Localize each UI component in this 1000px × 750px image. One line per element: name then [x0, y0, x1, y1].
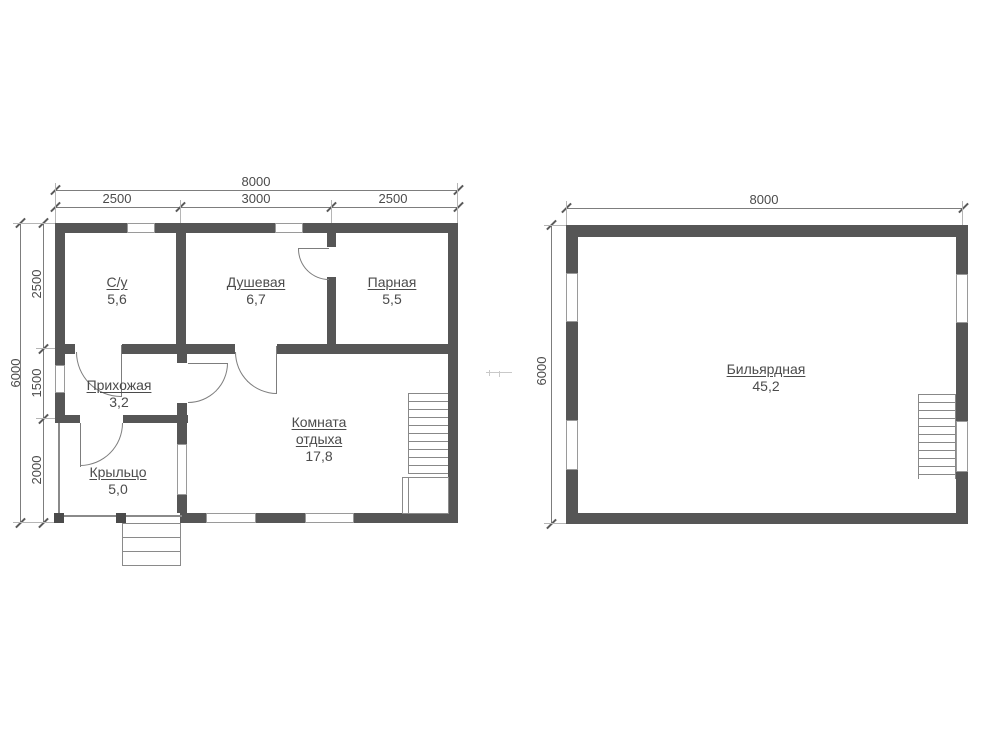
- window: [566, 273, 578, 322]
- window: [956, 274, 968, 323]
- extension-line: [544, 225, 566, 226]
- room-name: Душевая: [206, 274, 306, 291]
- f1-wall-right: [448, 223, 458, 523]
- porch-post: [54, 513, 64, 523]
- step-line: [123, 537, 180, 538]
- door-arc: [188, 363, 228, 403]
- staircase-landing: [402, 477, 449, 514]
- extension-line: [457, 183, 458, 223]
- room-label-su: С/у 5,6: [77, 274, 157, 308]
- f1-wall-mid-seg: [122, 344, 235, 354]
- extension-line: [544, 523, 566, 524]
- staircase: [408, 393, 448, 474]
- entrance-steps: [122, 523, 181, 566]
- dim-line-f2-height: [551, 225, 552, 524]
- f1-wall-hall-bottom-seg: [55, 415, 80, 423]
- extension-line: [36, 348, 55, 349]
- room-label-krylco: Крыльцо 5,0: [68, 464, 168, 498]
- extension-line: [36, 418, 55, 419]
- extension-line: [13, 223, 55, 224]
- f2-wall-right: [956, 225, 968, 524]
- extension-line: [55, 183, 56, 223]
- window: [177, 444, 187, 495]
- dim-label-f1-seg3: 2500: [363, 191, 423, 206]
- staircase-landing-line: [408, 477, 409, 514]
- extension-line: [962, 201, 963, 225]
- dim-label-f1-vseg1: 2500: [30, 254, 44, 314]
- f1-wall-lower-vert-seg: [177, 403, 187, 444]
- f1-wall-dush-parn-seg: [327, 277, 336, 344]
- extension-line: [331, 200, 332, 223]
- room-name: Парная: [342, 274, 442, 291]
- f1-wall-mid-seg: [277, 344, 458, 354]
- dim-label-f1-vseg2: 1500: [30, 353, 44, 413]
- dim-label-f1-seg1: 2500: [87, 191, 147, 206]
- window: [956, 421, 968, 472]
- room-area: 5,0: [68, 481, 168, 498]
- room-name: Комната отдыха: [281, 414, 357, 448]
- f1-wall-su-dush: [176, 233, 186, 344]
- door-arc: [235, 352, 277, 394]
- room-label-prihozhaya: Прихожая 3,2: [69, 377, 169, 411]
- f1-wall-top: [55, 223, 458, 233]
- break-mark-tick: [499, 371, 500, 377]
- f2-wall-bottom: [566, 513, 968, 524]
- door-leaf: [80, 423, 81, 467]
- window: [566, 420, 578, 470]
- room-area: 17,8: [281, 448, 357, 465]
- dim-line-f2-width: [566, 208, 963, 209]
- window: [305, 513, 354, 523]
- f1-wall-mid-seg: [55, 344, 75, 354]
- step-line: [123, 551, 180, 552]
- room-name: С/у: [77, 274, 157, 291]
- room-area: 45,2: [706, 378, 826, 395]
- room-name: Крыльцо: [68, 464, 168, 481]
- floor-plan-drawing: 8000 2500 3000 2500 6000 2500 1500 2000: [0, 0, 1000, 750]
- break-mark-tick: [489, 370, 490, 376]
- window: [127, 223, 155, 233]
- room-name: Бильярдная: [706, 361, 826, 378]
- room-label-dushevaya: Душевая 6,7: [206, 274, 306, 308]
- window: [275, 223, 303, 233]
- dim-label-f1-width-total: 8000: [226, 174, 286, 189]
- extension-line: [180, 200, 181, 223]
- room-label-parnaya: Парная 5,5: [342, 274, 442, 308]
- door-leaf: [298, 248, 329, 249]
- staircase: [918, 394, 956, 479]
- f2-wall-top: [566, 225, 968, 237]
- f1-wall-lower-vert-seg: [177, 354, 187, 363]
- dim-label-f2-width: 8000: [734, 192, 794, 207]
- dim-line-f1-width-segments: [55, 207, 458, 208]
- f2-wall-left: [566, 225, 578, 524]
- f1-wall-left: [55, 223, 65, 423]
- extension-line: [566, 201, 567, 225]
- porch-edge-left: [58, 423, 60, 516]
- dim-label-f1-seg2: 3000: [226, 191, 286, 206]
- room-label-bilyardnaya: Бильярдная 45,2: [706, 361, 826, 395]
- room-area: 6,7: [206, 291, 306, 308]
- f1-wall-lower-vert-seg: [177, 495, 187, 513]
- porch-post: [116, 513, 126, 523]
- extension-line: [13, 522, 55, 523]
- door-leaf: [276, 346, 277, 394]
- door-leaf: [188, 363, 228, 364]
- door-arc: [80, 423, 123, 466]
- room-label-komnata-otdyha: Комната отдыха 17,8: [281, 414, 357, 465]
- dim-label-f1-height-total: 6000: [9, 343, 23, 403]
- room-area: 3,2: [69, 394, 169, 411]
- room-area: 5,5: [342, 291, 442, 308]
- room-area: 5,6: [77, 291, 157, 308]
- dim-label-f2-height: 6000: [535, 341, 549, 401]
- dim-label-f1-vseg3: 2000: [30, 440, 44, 500]
- f1-wall-dush-parn-seg: [327, 233, 336, 247]
- window: [206, 513, 256, 523]
- window: [55, 365, 65, 393]
- room-name: Прихожая: [69, 377, 169, 394]
